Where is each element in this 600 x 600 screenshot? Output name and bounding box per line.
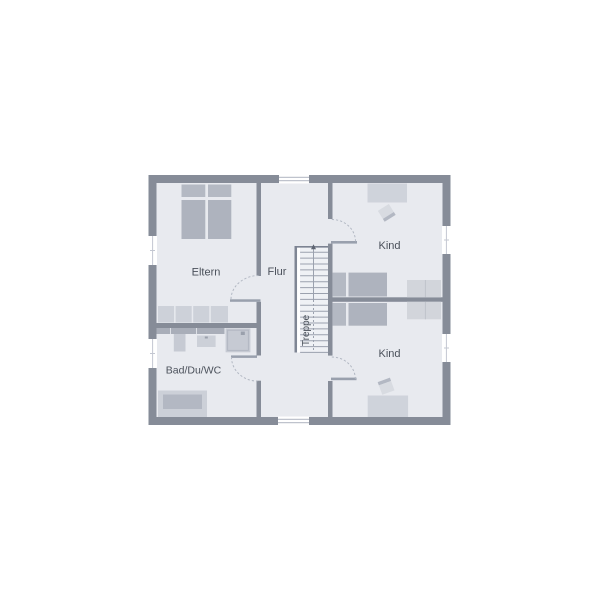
svg-text:Kind: Kind: [378, 348, 400, 360]
svg-text:Kind: Kind: [378, 240, 400, 252]
svg-text:Bad/Du/WC: Bad/Du/WC: [166, 365, 222, 377]
svg-text:Flur: Flur: [268, 266, 287, 278]
svg-text:Eltern: Eltern: [192, 267, 221, 279]
svg-text:Treppe: Treppe: [301, 314, 312, 346]
